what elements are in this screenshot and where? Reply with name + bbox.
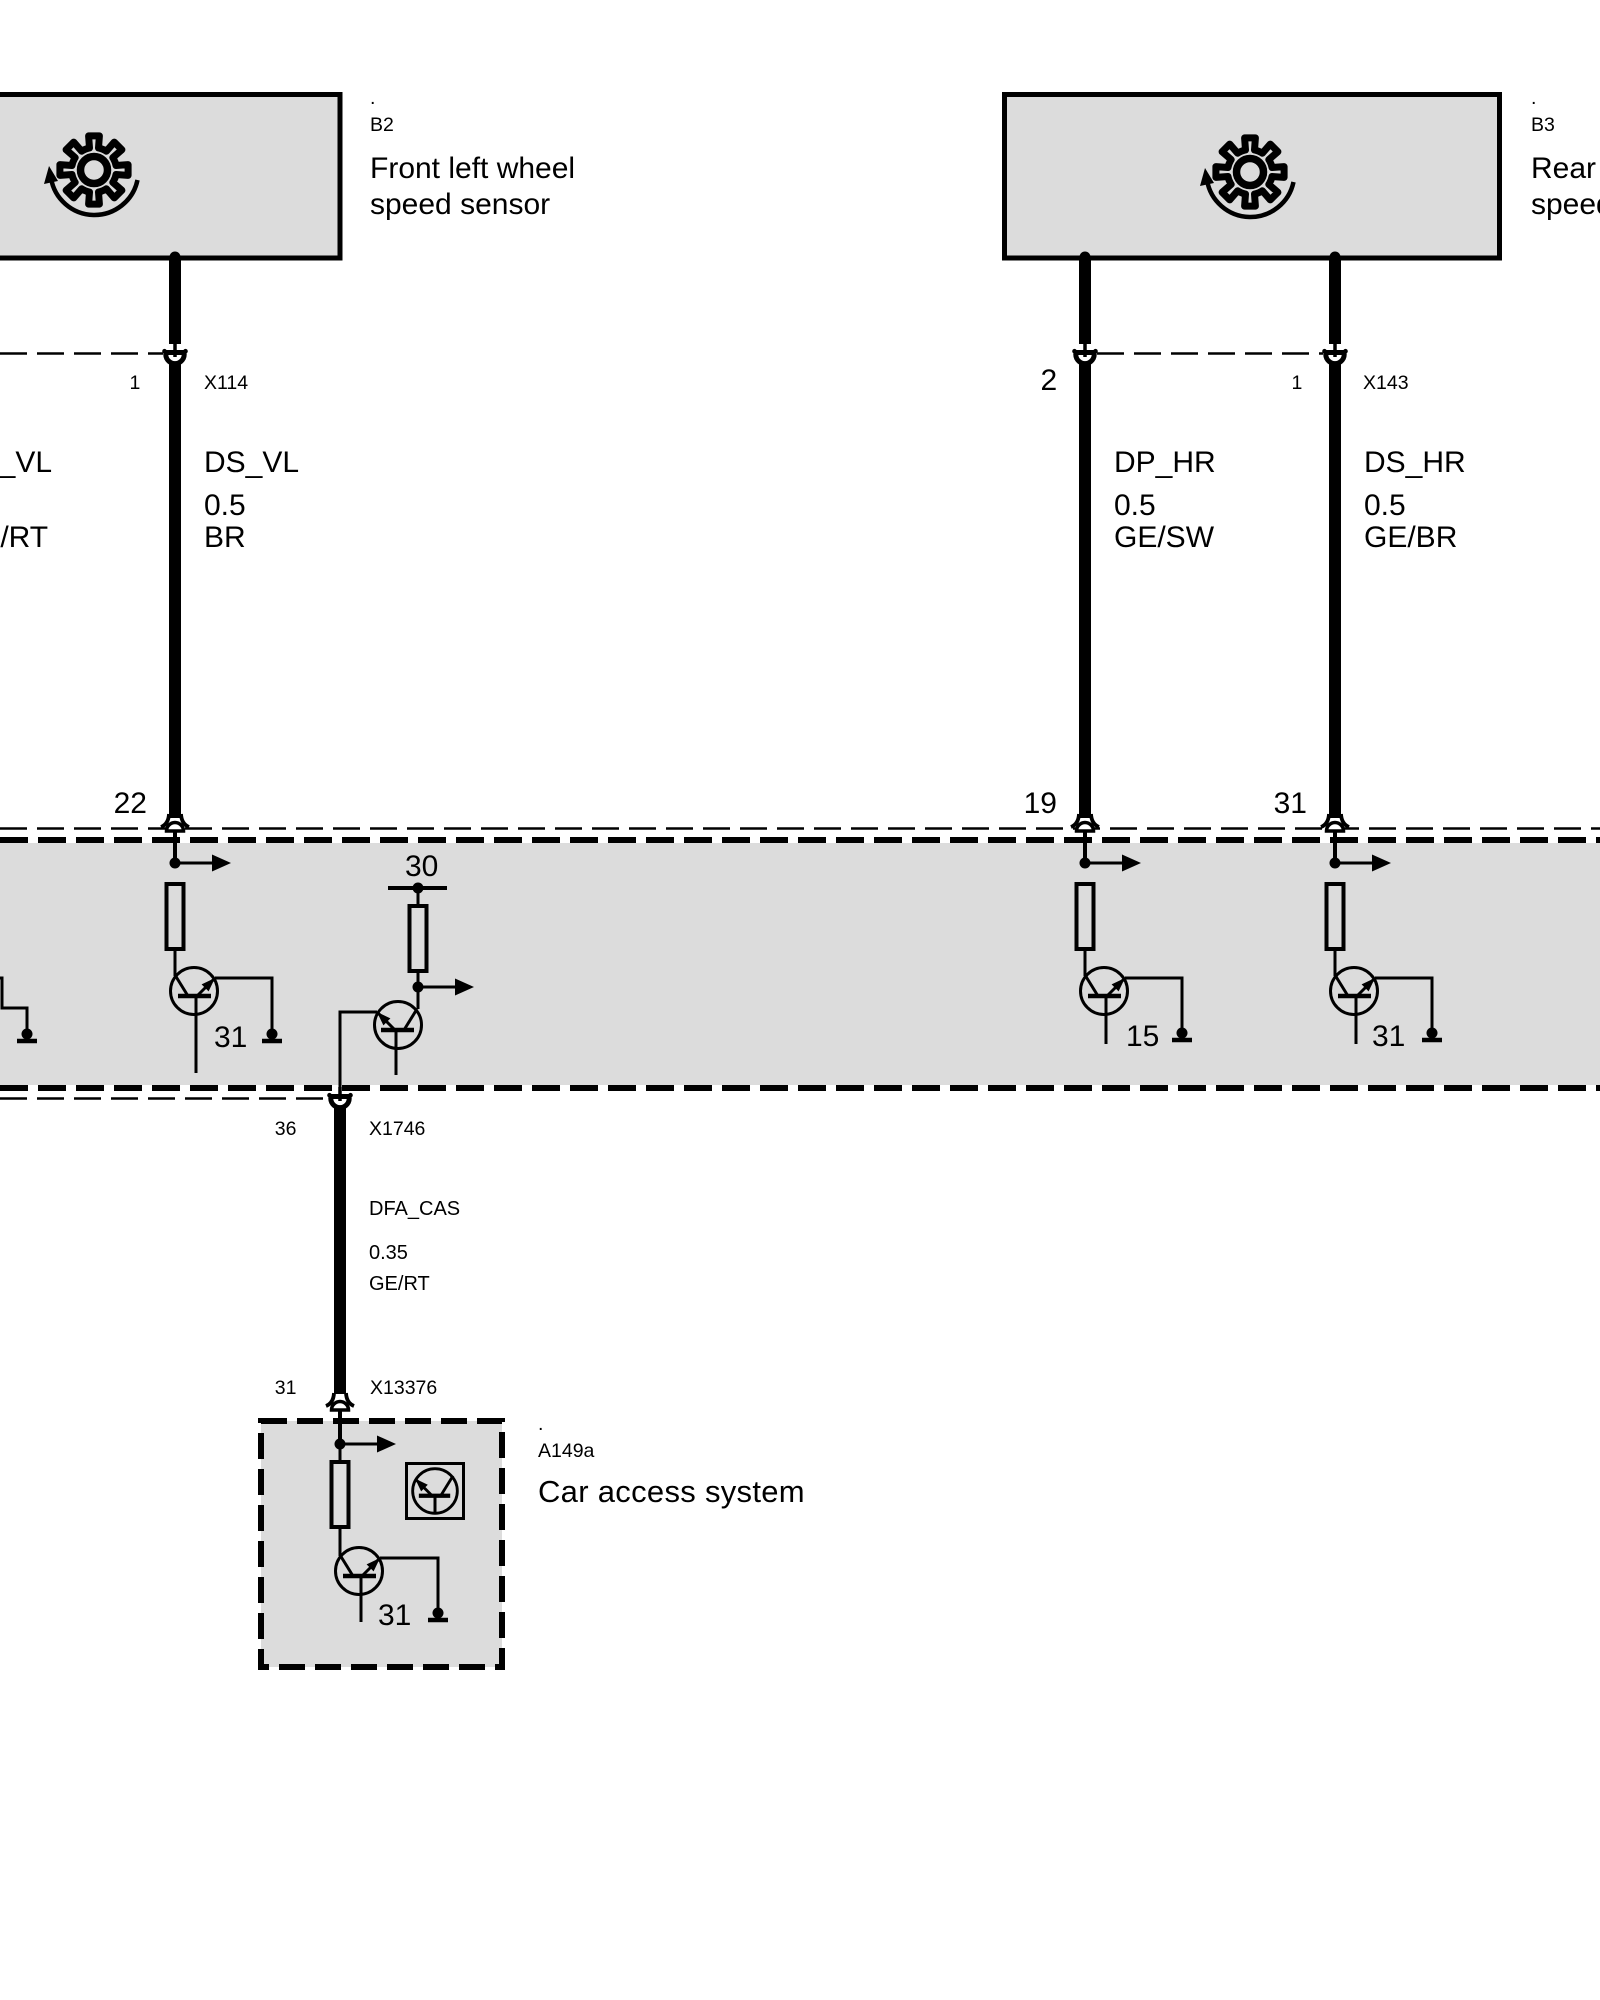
svg-text:2: 2 <box>1041 364 1058 397</box>
svg-text:0.5: 0.5 <box>1364 489 1406 522</box>
svg-text:DP_HR: DP_HR <box>1114 446 1216 479</box>
svg-text:31: 31 <box>275 1377 297 1399</box>
svg-text:speed sensor: speed sensor <box>370 188 550 221</box>
svg-text:Car access system: Car access system <box>538 1474 805 1509</box>
svg-text:31: 31 <box>214 1021 247 1054</box>
svg-text:1: 1 <box>1292 372 1303 394</box>
svg-text:.: . <box>370 87 375 109</box>
svg-text:X143: X143 <box>1363 372 1409 394</box>
svg-text:1: 1 <box>130 372 141 394</box>
svg-text:A149a: A149a <box>538 1440 595 1462</box>
svg-text:15: 15 <box>1126 1020 1159 1053</box>
svg-text:0.5: 0.5 <box>1114 489 1156 522</box>
svg-text:GE/RT: GE/RT <box>0 521 48 554</box>
svg-text:0.5: 0.5 <box>204 489 246 522</box>
svg-text:BR: BR <box>204 521 246 554</box>
svg-text:.: . <box>538 1413 543 1435</box>
svg-text:30: 30 <box>405 850 438 883</box>
svg-text:B3: B3 <box>1531 114 1555 136</box>
svg-text:0.35: 0.35 <box>369 1242 408 1264</box>
svg-text:GE/RT: GE/RT <box>369 1273 430 1295</box>
svg-text:B2: B2 <box>370 114 394 136</box>
svg-text:DS_HR: DS_HR <box>1364 446 1466 479</box>
svg-text:X1746: X1746 <box>369 1118 425 1140</box>
svg-text:speed sensor: speed sensor <box>1531 188 1600 221</box>
svg-text:GE/SW: GE/SW <box>1114 521 1215 554</box>
svg-text:Rear right wheel: Rear right wheel <box>1531 152 1600 185</box>
svg-text:DFA_CAS: DFA_CAS <box>369 1198 460 1220</box>
svg-text:X13376: X13376 <box>370 1377 437 1399</box>
svg-text:36: 36 <box>275 1118 297 1140</box>
svg-text:DS_VL: DS_VL <box>204 446 299 479</box>
svg-text:31: 31 <box>1372 1020 1405 1053</box>
svg-text:31: 31 <box>1274 787 1307 820</box>
svg-text:19: 19 <box>1024 787 1057 820</box>
svg-text:.: . <box>1531 87 1536 109</box>
svg-text:22: 22 <box>114 787 147 820</box>
svg-text:X114: X114 <box>204 372 248 394</box>
svg-text:DP_VL: DP_VL <box>0 446 52 479</box>
svg-text:GE/BR: GE/BR <box>1364 521 1457 554</box>
svg-text:Front left wheel: Front left wheel <box>370 152 575 185</box>
svg-text:31: 31 <box>378 1599 411 1632</box>
